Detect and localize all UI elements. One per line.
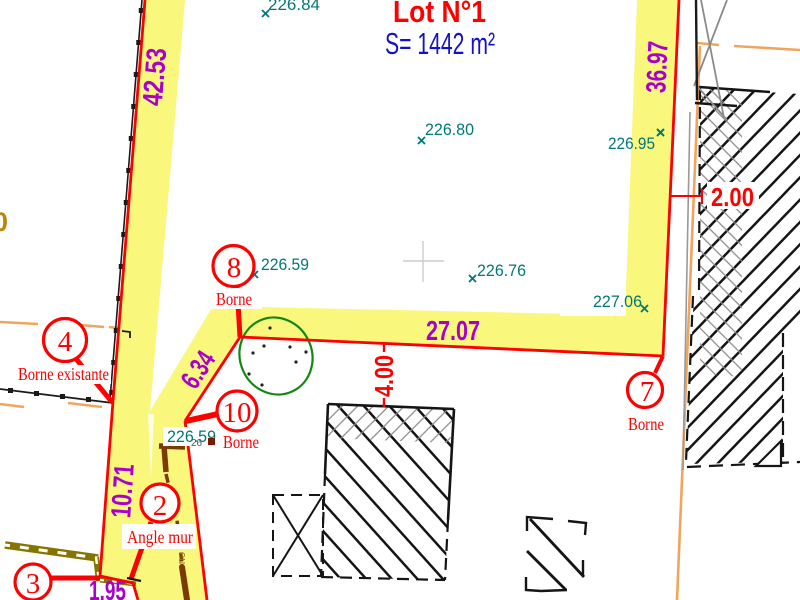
svg-text:3: 3 xyxy=(26,568,41,600)
svg-text:Borne existante: Borne existante xyxy=(18,364,109,384)
svg-text:27.07: 27.07 xyxy=(426,315,480,346)
svg-text:26: 26 xyxy=(191,438,203,449)
svg-text:226.76: 226.76 xyxy=(477,261,526,280)
svg-text:7: 7 xyxy=(640,376,655,408)
svg-text:226.80: 226.80 xyxy=(425,120,474,139)
svg-text:1.95: 1.95 xyxy=(89,575,126,600)
svg-text:2: 2 xyxy=(153,490,168,522)
svg-text:8: 8 xyxy=(227,252,242,284)
svg-text:Borne: Borne xyxy=(628,414,664,434)
svg-text:2.00: 2.00 xyxy=(711,182,754,212)
svg-text:226.59: 226.59 xyxy=(261,255,309,274)
svg-text:Angle mur: Angle mur xyxy=(127,527,193,547)
svg-text:S= 1442 m²: S= 1442 m² xyxy=(385,26,495,61)
svg-text:42.53: 42.53 xyxy=(137,47,173,107)
svg-text:36.97: 36.97 xyxy=(640,40,673,93)
svg-text:227.06: 227.06 xyxy=(593,292,642,311)
svg-text:Borne: Borne xyxy=(223,432,259,452)
svg-text:Borne: Borne xyxy=(216,289,252,309)
svg-text:4: 4 xyxy=(58,326,73,358)
svg-text:0: 0 xyxy=(0,207,8,237)
svg-text:eu: eu xyxy=(176,552,188,564)
svg-text:4.00: 4.00 xyxy=(369,355,399,397)
svg-text:Lot N°1: Lot N°1 xyxy=(393,0,486,29)
svg-text:10: 10 xyxy=(223,397,252,429)
svg-text:226.95: 226.95 xyxy=(608,134,655,153)
svg-text:10.71: 10.71 xyxy=(105,463,140,519)
svg-text:226.84: 226.84 xyxy=(268,0,320,14)
